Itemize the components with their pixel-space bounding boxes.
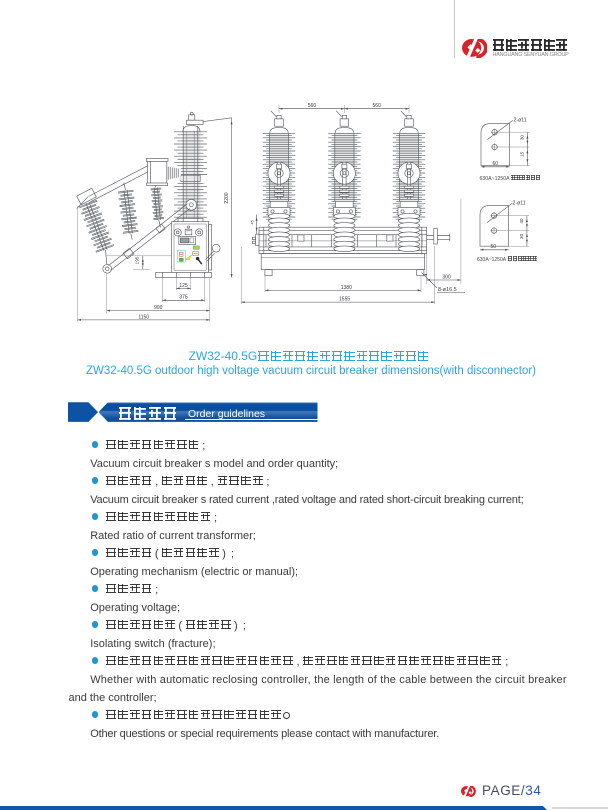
svg-text:560: 560: [373, 103, 382, 109]
svg-text:195: 195: [135, 256, 140, 264]
svg-text:2-ø11: 2-ø11: [514, 118, 527, 124]
svg-text:125: 125: [179, 283, 188, 289]
svg-text:50: 50: [491, 244, 497, 250]
svg-text:15: 15: [520, 151, 525, 157]
svg-text:40: 40: [519, 218, 524, 224]
svg-text:1380: 1380: [341, 285, 352, 291]
svg-text:60: 60: [493, 161, 499, 167]
svg-text:2-ø11: 2-ø11: [513, 201, 526, 207]
svg-text:375: 375: [179, 295, 188, 301]
svg-text:560: 560: [308, 103, 317, 109]
svg-text:45: 45: [250, 220, 254, 224]
svg-text:300: 300: [442, 274, 451, 280]
svg-text:900: 900: [154, 305, 163, 311]
svg-text:1150: 1150: [138, 314, 149, 320]
svg-text:1555: 1555: [339, 297, 350, 303]
svg-text:2200: 2200: [224, 192, 230, 203]
svg-text:30: 30: [520, 135, 525, 141]
svg-text:30: 30: [519, 233, 524, 239]
svg-text:8-ø16.5: 8-ø16.5: [438, 287, 457, 293]
